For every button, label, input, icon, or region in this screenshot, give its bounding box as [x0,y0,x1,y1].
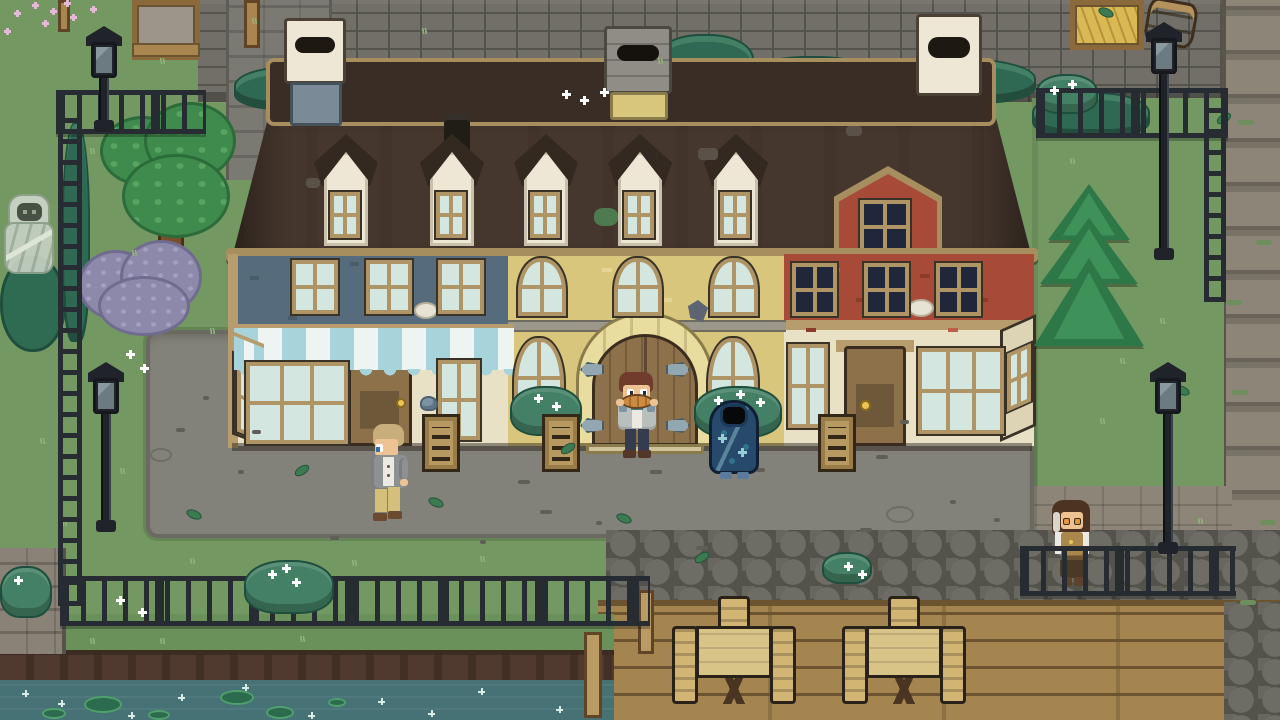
lamp-pole [1159,74,1169,250]
roof-patch [698,148,718,160]
pebble [330,536,339,540]
grass-tuft [130,250,139,256]
white-flower [858,570,867,579]
brick-mark [602,268,612,272]
white-flower [736,390,745,399]
pink-flower [90,6,97,13]
red-house-door-knob [860,400,871,411]
white-flower [268,570,277,579]
villager-holding-croissant-part [616,399,624,406]
white-flower [292,578,301,587]
corner-display-window [918,348,1004,434]
lily-pad [266,706,294,719]
white-flower [138,608,147,617]
chamfered-corner-right [1000,314,1036,442]
brick-mark [806,328,816,332]
villager-holding-croissant-part [623,450,636,458]
chimney-right [916,14,982,96]
stair-moss [1260,520,1276,525]
pebble [238,470,244,474]
grass-tuft [158,58,167,64]
lamp-base [1158,542,1178,554]
pebble [994,518,1000,522]
pavement-mark [886,506,914,523]
roof-dormer [314,130,378,250]
water-sparkle [22,690,29,697]
water-sparkle [428,710,435,717]
pine-tree [1034,184,1144,350]
lamp-glass [1151,38,1177,74]
grass-tuft [1158,318,1167,324]
chair-right [770,626,796,704]
pavement-mark [150,448,172,462]
walking-villager-part [375,489,387,512]
blue-cloaked-figure-part [738,448,747,457]
lily-pad [148,710,170,720]
iron-fence [1020,546,1236,596]
chair-right [940,626,966,704]
shop-door-knob [396,398,406,408]
roof-dormer [608,130,672,250]
lily-pad [42,708,66,719]
grass-tuft [298,636,307,642]
chimney-left [284,18,346,84]
water-sparkle [556,706,563,713]
table-legs [876,674,932,704]
pink-flower [14,10,21,17]
blue-shop-window [366,260,412,314]
stair-moss [1232,390,1248,395]
ghost-villager-part [4,222,54,274]
walking-villager-part [387,474,390,477]
pink-flower [70,14,77,21]
lamp-post [88,362,124,536]
blue-cloaked-figure-part [720,404,748,427]
walking-villager-part [388,511,402,519]
stair-moss [1240,600,1256,605]
water-sparkle [308,712,315,719]
red-house-floor-trim [784,320,1034,330]
walking-villager-part [388,487,400,512]
pebble [860,528,872,532]
iron-fence [58,116,82,606]
grass-tuft [188,558,197,564]
walking-villager[interactable] [366,424,412,532]
fence-bush [0,566,52,618]
grass-tuft [88,148,97,154]
dormer-window [436,192,466,238]
lamp-glass [1155,378,1181,414]
grass-tuft [250,18,259,24]
dock-table-set [672,596,796,710]
shop-display-window [246,362,348,444]
white-flower [562,90,571,99]
walking-villager-part [373,513,387,521]
lamp-base [94,120,114,132]
grass-tuft [478,556,487,562]
water-sparkle [58,700,65,707]
dormer-window [624,192,654,238]
pigeon[interactable] [420,396,438,411]
white-flower [140,364,149,373]
villager-holding-croissant-part [650,399,658,406]
blue-cloaked-figure[interactable] [704,390,764,480]
dock-post [584,632,602,718]
water-sparkle [242,684,249,691]
roof-dormer [514,130,578,250]
water-sparkle [478,688,485,695]
canal-dirt-edge [0,650,614,684]
pebble [540,510,552,514]
pink-flower [4,28,11,35]
white-flower [282,564,291,573]
ghost-villager-part [17,203,42,221]
wood-post-b [244,0,260,48]
purple-canopy [98,276,190,336]
roof-dormer [420,130,484,250]
ghost-villager-part [32,210,36,214]
blue-shop-window [292,260,338,314]
lamp-post [1146,22,1182,264]
lamp-base [1154,248,1174,260]
railing-villager-part [1053,512,1060,532]
water-sparkle [128,712,135,719]
railing-villager-part [1069,540,1073,544]
railing-villager-part [1058,504,1086,512]
villager-holding-croissant-part [625,429,636,452]
lamp-base [96,520,116,532]
walking-villager-part [376,447,380,452]
ghost-villager-part [23,210,27,214]
pebble [950,500,956,504]
walking-villager-part [400,479,408,486]
villager-holding-croissant-part [621,394,653,409]
chair-left [842,626,868,704]
yellow-house-window [710,258,758,316]
blue-cloaked-figure-part [718,434,727,443]
stone-display-stand [132,0,200,60]
grass-tuft [1196,518,1205,524]
brick-mark [250,276,259,280]
white-flower [600,88,609,97]
blue-shop-window [438,260,484,314]
pink-flower [64,0,71,7]
roof-patch [846,126,862,136]
red-house-window [936,263,981,316]
pebble [518,480,530,484]
white-flower [552,402,561,411]
pink-flower [32,2,39,9]
lily-pad [84,696,122,713]
table-top [866,626,942,678]
white-flower [844,562,853,571]
wall-plaque-red [908,299,934,317]
villager-holding-croissant-part [638,450,651,458]
pebble [596,521,602,525]
pebble [650,470,662,474]
table-top [696,626,772,678]
brick-mark [662,298,672,302]
ghost-villager[interactable] [2,194,56,278]
walking-villager-part [383,457,394,486]
brick-mark [920,274,930,278]
lily-pad [220,690,254,705]
white-flower [126,350,135,359]
railing-villager-part [1074,518,1081,525]
grass-tuft [1068,158,1077,164]
grass-tuft [88,638,97,644]
dormer-window [530,192,560,238]
roof-moss [594,208,618,226]
chimney-left-pipe [290,82,342,126]
game-scene [0,0,1280,720]
yellow-house-window [614,258,662,316]
pebble [203,396,209,400]
lamp-pole [1163,414,1173,544]
pebble [696,546,708,550]
grass-tuft [158,638,167,644]
pebble [176,428,185,432]
dormer-window [720,192,750,238]
dock-table-set [842,596,966,710]
cobblestone-corner [1224,602,1280,720]
stair-moss [1256,240,1272,245]
chimney-middle-base [610,92,668,120]
table-legs [706,674,762,704]
pink-flower [42,20,49,27]
villager-holding-croissant-part [638,429,649,452]
lamp-pole [99,78,109,122]
white-flower [14,576,23,585]
grass-tuft [208,328,217,334]
iron-fence [1204,90,1226,302]
lamp-pole [101,414,111,522]
walking-villager-part [399,458,408,480]
red-house-window [864,263,909,316]
brick-mark [948,328,958,332]
yellow-house-window [518,258,566,316]
roof-patch [306,178,320,188]
water-sparkle [378,698,385,705]
tree-canopy [122,154,230,238]
brick-mark [288,316,297,320]
walking-villager-part [387,465,390,468]
white-flower [1050,86,1059,95]
stair-moss [1226,300,1242,305]
lamp-post [86,26,122,136]
white-flower [714,396,723,405]
wall-plaque-blue [414,302,438,319]
white-flower [534,394,543,403]
villager-holding-croissant[interactable] [616,372,658,462]
grass-tuft [656,58,665,64]
grass-tuft [420,28,429,34]
pebble [900,420,909,424]
lamp-glass [91,42,117,78]
water-sparkle [178,694,185,701]
grass-tuft [38,438,47,444]
red-house-window [792,263,837,316]
wooden-crate [422,414,460,472]
chair-left [672,626,698,704]
pink-flower [50,8,57,15]
white-flower [1068,80,1077,89]
blue-cloaked-figure-part [737,472,749,479]
lamp-glass [93,378,119,414]
railing-villager-part [1063,518,1070,525]
corner-window-angled [1007,343,1031,412]
pebble [876,455,888,459]
grass-tuft [350,560,359,566]
iron-fence [1036,88,1228,138]
dormer-window [330,192,360,238]
gable-window [860,200,910,254]
lamp-post [1150,362,1186,558]
iron-fence [60,576,650,626]
pebble [252,430,261,434]
purple-tree [78,240,202,336]
lily-pad [328,698,346,707]
stair-moss [1238,120,1254,125]
brick-mark [350,262,359,266]
blue-cloaked-figure-part [720,472,732,479]
wooden-crate [818,414,856,472]
white-flower [580,96,589,105]
white-flower [756,398,765,407]
pebble [480,540,486,544]
grass-tuft [1118,358,1127,364]
grass-tuft [1098,418,1107,424]
white-flower [116,596,125,605]
